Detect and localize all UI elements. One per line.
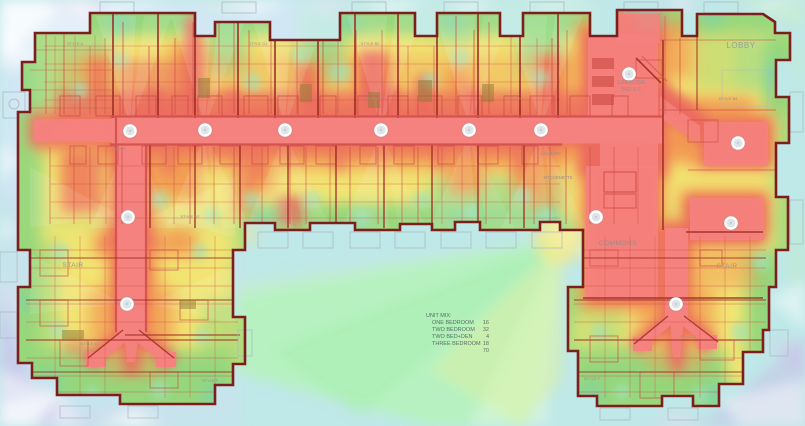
svg-text:70: 70 — [483, 348, 489, 354]
svg-text:THREE BEDROOM: THREE BEDROOM — [432, 341, 481, 347]
svg-text:EXERCISE-: EXERCISE- — [617, 80, 647, 86]
svg-text:STYLE C1: STYLE C1 — [506, 96, 526, 101]
svg-text:STYLE B4: STYLE B4 — [719, 96, 738, 101]
svg-text:STYLE B2: STYLE B2 — [361, 41, 380, 46]
svg-text:COMMONS: COMMONS — [599, 240, 637, 247]
svg-text:STYLE D1: STYLE D1 — [249, 41, 269, 46]
svg-text:STYLE D2: STYLE D2 — [181, 214, 201, 219]
svg-text:LAUNDRY: LAUNDRY — [541, 151, 561, 156]
svg-text:STYLE F: STYLE F — [202, 378, 219, 383]
svg-text:MECH: MECH — [114, 146, 126, 151]
svg-text:STAIR: STAIR — [716, 263, 737, 270]
svg-text:STYLE E2: STYLE E2 — [81, 341, 100, 346]
svg-text:STYLE E: STYLE E — [680, 334, 697, 339]
svg-text:4: 4 — [486, 334, 489, 340]
svg-text:18: 18 — [483, 341, 489, 347]
svg-text:UNIT MIX:: UNIT MIX: — [426, 313, 452, 319]
svg-text:LOBBY: LOBBY — [726, 41, 755, 50]
svg-text:592 S.F.: 592 S.F. — [622, 87, 643, 93]
svg-text:TWO BED+DEN: TWO BED+DEN — [432, 334, 473, 340]
svg-text:STYLE B1: STYLE B1 — [363, 96, 382, 101]
svg-text:STYLE A: STYLE A — [67, 41, 84, 46]
svg-text:16: 16 — [483, 320, 489, 326]
svg-text:32: 32 — [483, 327, 489, 333]
svg-text:STYLE F: STYLE F — [584, 376, 601, 381]
svg-text:STAIR: STAIR — [62, 262, 83, 269]
svg-text:ONE BEDROOM: ONE BEDROOM — [432, 320, 474, 326]
svg-text:KITCHENETTE: KITCHENETTE — [543, 175, 572, 180]
svg-text:TWO BEDROOM: TWO BEDROOM — [432, 327, 475, 333]
